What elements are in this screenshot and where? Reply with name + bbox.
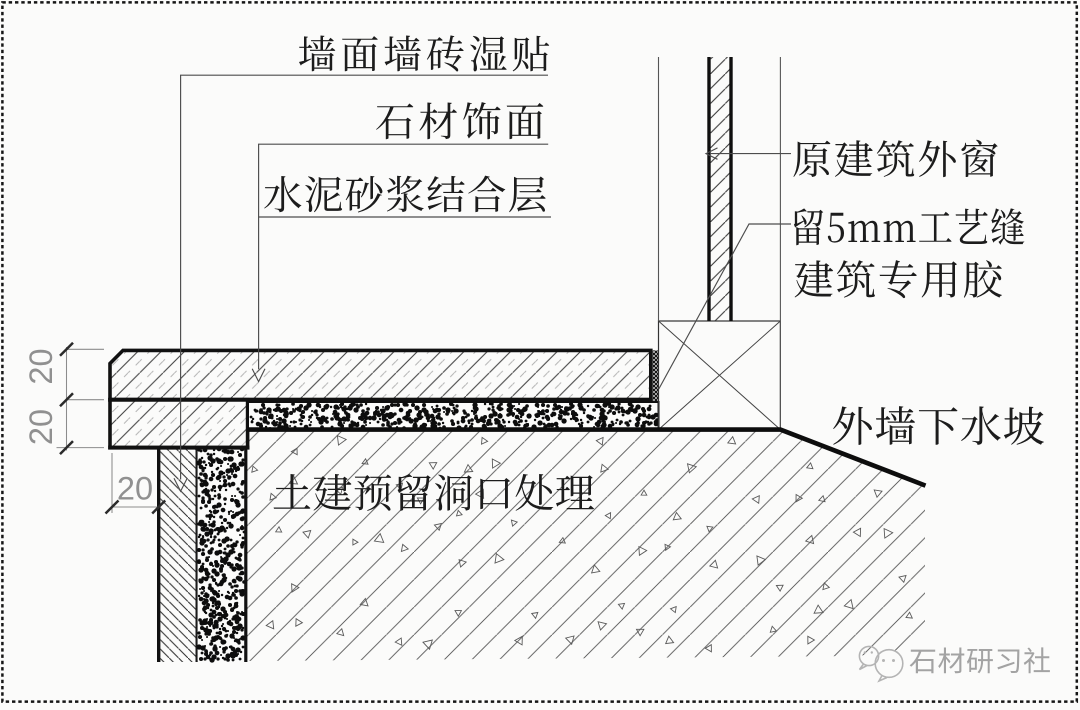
svg-text:20: 20 — [117, 471, 153, 507]
svg-text:20: 20 — [23, 348, 59, 384]
svg-text:20: 20 — [23, 409, 59, 445]
